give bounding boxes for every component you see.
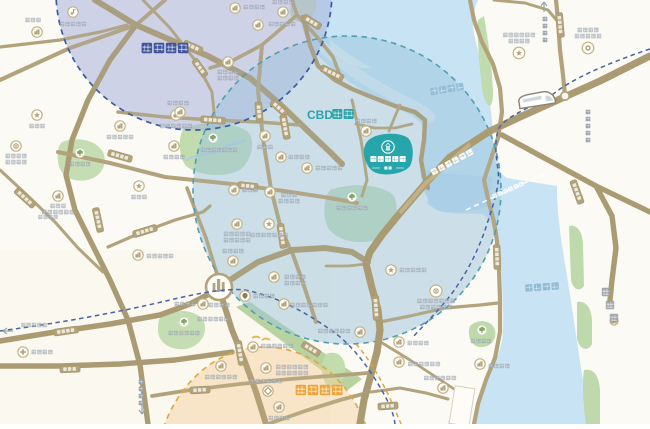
svg-text:CBD: CBD (307, 108, 333, 122)
